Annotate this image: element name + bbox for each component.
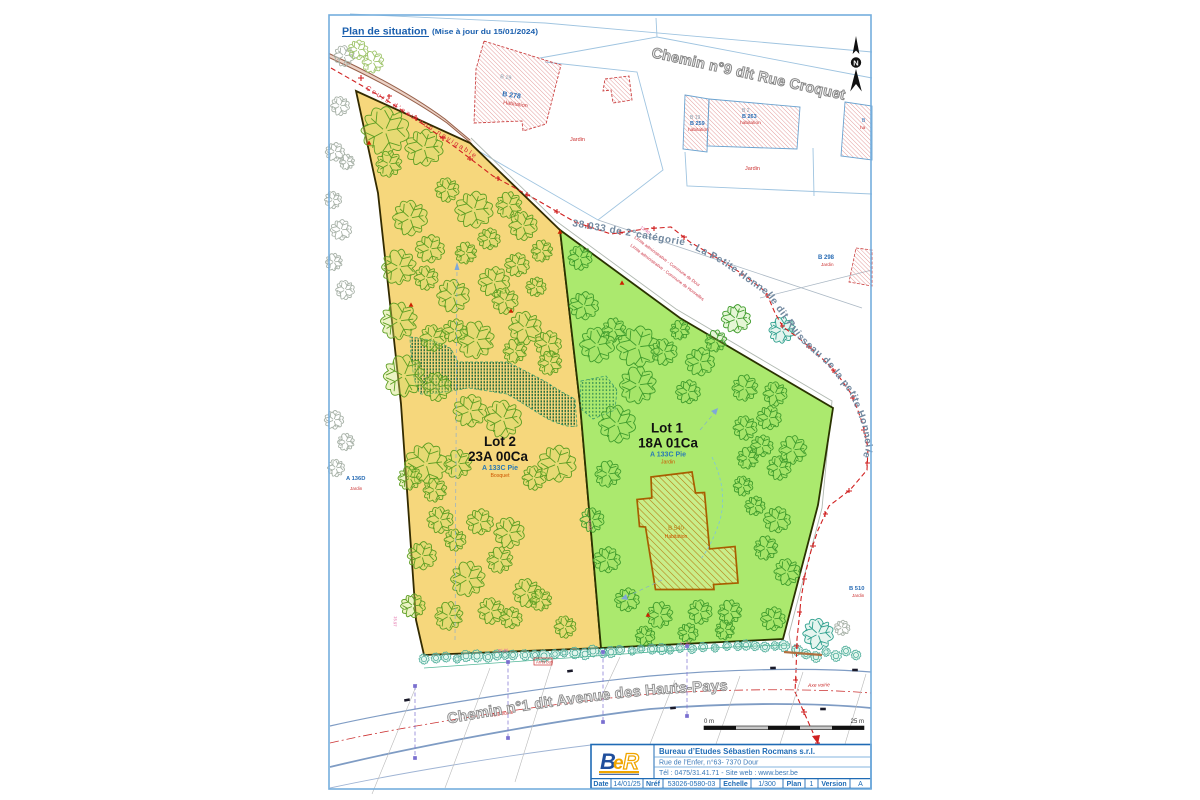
- svg-text:A 136D: A 136D: [346, 476, 365, 482]
- svg-text:A 133C Pie: A 133C Pie: [482, 465, 518, 472]
- svg-text:Jardin: Jardin: [570, 137, 585, 143]
- svg-text:23.92: 23.92: [587, 520, 593, 532]
- svg-text:Tél : 0475/31.41.71 - Site web: Tél : 0475/31.41.71 - Site web : www.bes…: [659, 770, 798, 777]
- svg-text:ha: ha: [860, 125, 866, 131]
- svg-text:B 259: B 259: [690, 121, 705, 127]
- svg-text:N: N: [853, 58, 858, 67]
- svg-text:0 m: 0 m: [704, 719, 714, 725]
- svg-text:Jardin: Jardin: [745, 166, 760, 172]
- svg-text:15.97: 15.97: [392, 616, 398, 627]
- svg-text:25.86: 25.86: [498, 648, 509, 653]
- svg-text:Rue de l’Enfer, n°63- 7370 Dou: Rue de l’Enfer, n°63- 7370 Dour: [659, 759, 759, 767]
- svg-text:Lot 1: Lot 1: [651, 421, 684, 436]
- svg-text:Jardin: Jardin: [821, 262, 834, 267]
- svg-text:habitation: habitation: [688, 127, 709, 133]
- svg-text:B 263: B 263: [742, 114, 757, 120]
- svg-text:Bureau d’Etudes Sébastien Rocm: Bureau d’Etudes Sébastien Rocmans s.r.l.: [659, 747, 815, 756]
- svg-text:Plan: Plan: [787, 781, 802, 788]
- svg-text:Jardin: Jardin: [350, 486, 363, 491]
- svg-text:25 m: 25 m: [851, 719, 864, 725]
- svg-text:Echelle: Echelle: [723, 781, 748, 788]
- svg-text:Lot 2: Lot 2: [484, 434, 516, 449]
- svg-text:Nréf: Nréf: [646, 781, 661, 788]
- svg-text:A 133C Pie: A 133C Pie: [650, 452, 686, 459]
- svg-text:A: A: [858, 781, 863, 788]
- svg-text:Bosquet: Bosquet: [490, 473, 510, 479]
- svg-text:B 298: B 298: [818, 255, 835, 261]
- svg-text:Plan de situation: Plan de situation: [342, 26, 427, 38]
- svg-text:Axe voirie: Axe voirie: [807, 682, 830, 689]
- svg-text:Jardin: Jardin: [852, 593, 865, 598]
- svg-text:Date: Date: [593, 781, 608, 788]
- svg-text:R: R: [623, 749, 639, 774]
- svg-text:Jardin: Jardin: [661, 460, 675, 466]
- svg-text:23A 00Ca: 23A 00Ca: [468, 449, 528, 464]
- svg-text:B 510: B 510: [849, 586, 864, 592]
- svg-text:1: 1: [810, 781, 814, 788]
- svg-text:Arrêt bus: Arrêt bus: [536, 660, 553, 665]
- svg-text:18A 01Ca: 18A 01Ca: [638, 436, 698, 451]
- svg-text:1/300: 1/300: [758, 781, 776, 788]
- svg-text:53026-0580-03: 53026-0580-03: [668, 781, 716, 788]
- svg-text:31.05: 31.05: [680, 640, 691, 646]
- svg-text:Habitation: Habitation: [665, 534, 688, 540]
- svg-text:habitation: habitation: [740, 120, 761, 126]
- svg-text:B 540: B 540: [668, 526, 684, 532]
- svg-text:Version: Version: [821, 781, 846, 788]
- svg-text:(Mise à jour du 15/01/2024): (Mise à jour du 15/01/2024): [432, 27, 539, 36]
- svg-text:14/01/25: 14/01/25: [613, 781, 640, 788]
